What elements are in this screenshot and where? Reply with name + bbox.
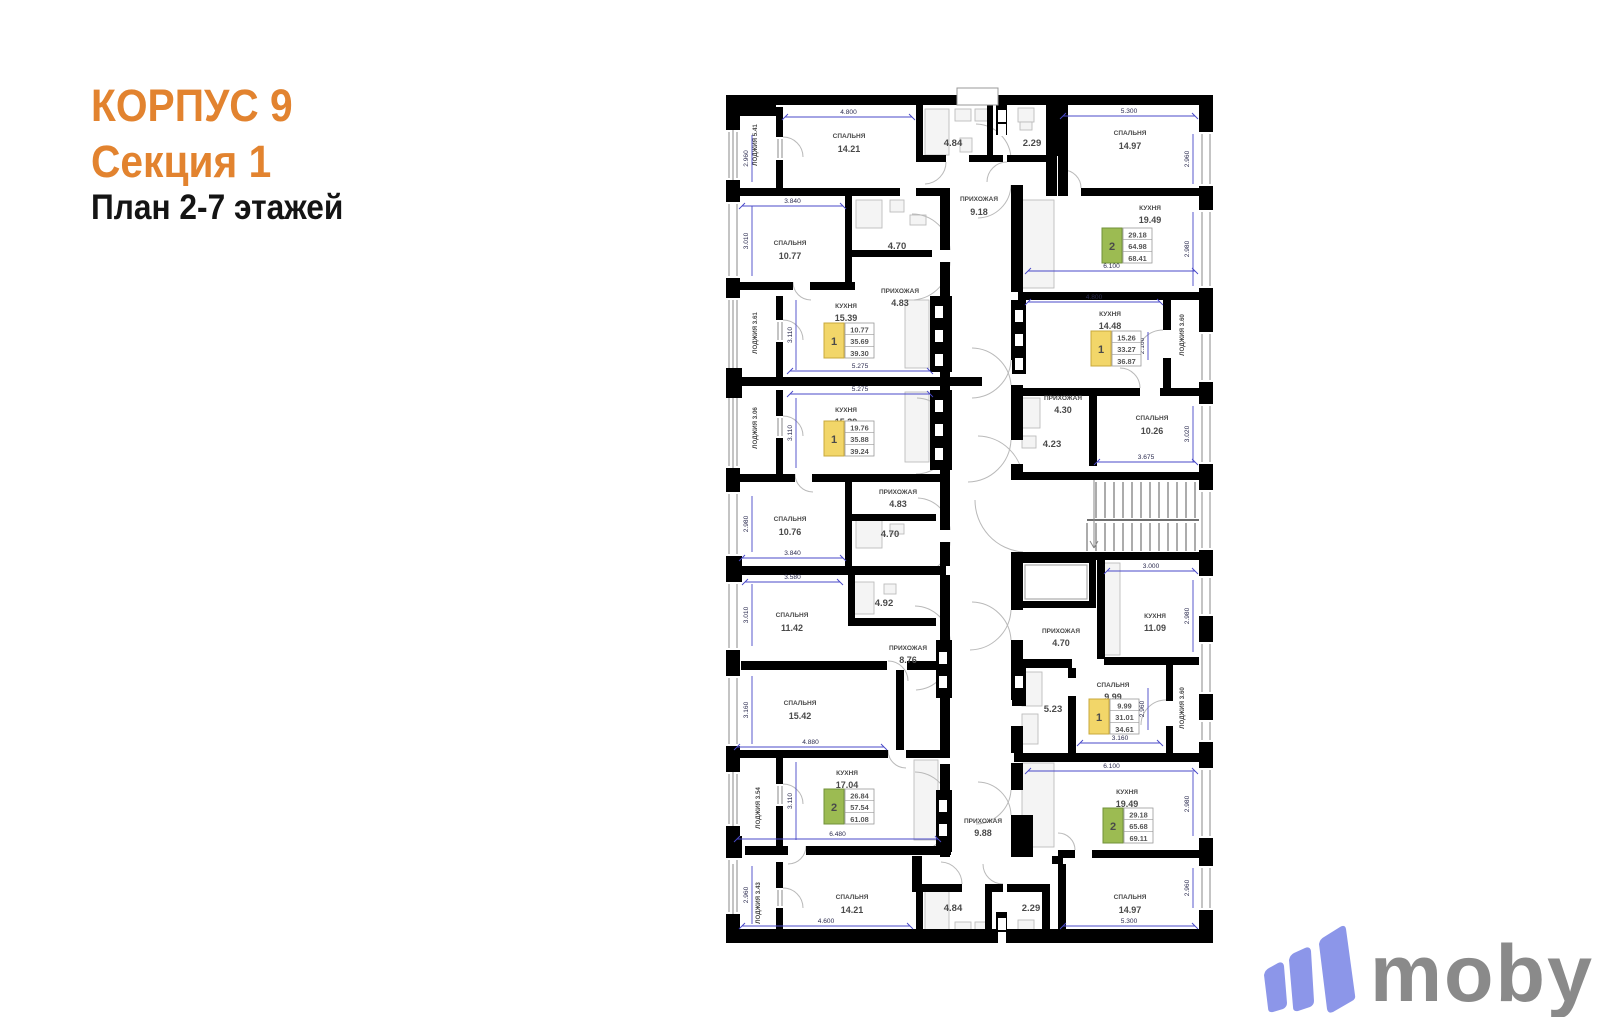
svg-text:5.300: 5.300 [1121,918,1138,925]
svg-text:19.76: 19.76 [850,424,869,433]
svg-text:14.48: 14.48 [1099,321,1122,331]
svg-text:СПАЛЬНЯ: СПАЛЬНЯ [1097,682,1130,689]
svg-text:ЛОДЖИЯ 3.60: ЛОДЖИЯ 3.60 [1179,687,1186,729]
svg-text:2.29: 2.29 [1023,138,1042,149]
svg-text:КУХНЯ: КУХНЯ [1144,613,1166,620]
svg-text:3.160: 3.160 [743,701,750,718]
svg-text:ЛОДЖИЯ 3.06: ЛОДЖИЯ 3.06 [752,407,759,449]
svg-text:1: 1 [1098,344,1104,356]
svg-text:39.30: 39.30 [850,349,869,358]
svg-text:14.21: 14.21 [841,905,864,915]
svg-text:2.980: 2.980 [1184,607,1191,624]
svg-text:ЛОДЖИЯ 5.41: ЛОДЖИЯ 5.41 [752,124,759,166]
svg-text:moby: moby [1370,929,1594,1017]
svg-text:2.960: 2.960 [1184,150,1191,167]
svg-text:4.83: 4.83 [891,298,909,308]
svg-text:14.97: 14.97 [1119,141,1142,151]
svg-text:4.84: 4.84 [944,138,963,149]
svg-text:35.88: 35.88 [850,435,869,444]
svg-text:3.110: 3.110 [787,793,794,809]
svg-text:65.68: 65.68 [1129,822,1148,831]
svg-text:3.010: 3.010 [743,606,750,623]
svg-text:2.960: 2.960 [1184,879,1191,896]
svg-text:СПАЛЬНЯ: СПАЛЬНЯ [1136,415,1169,422]
svg-text:36.87: 36.87 [1117,357,1136,366]
svg-text:3.160: 3.160 [1112,735,1129,742]
svg-text:3.580: 3.580 [784,574,801,581]
svg-text:3.840: 3.840 [784,198,801,205]
svg-text:5.275: 5.275 [852,386,869,393]
svg-text:10.77: 10.77 [779,251,802,261]
svg-text:4.84: 4.84 [944,903,963,914]
svg-text:6.480: 6.480 [829,831,846,838]
svg-text:ПРИХОЖАЯ: ПРИХОЖАЯ [889,645,927,652]
svg-text:ПРИХОЖАЯ: ПРИХОЖАЯ [960,196,998,203]
svg-text:3.010: 3.010 [743,232,750,249]
svg-text:ПРИХОЖАЯ: ПРИХОЖАЯ [1044,395,1082,402]
svg-text:9.99: 9.99 [1117,702,1131,711]
svg-text:СПАЛЬНЯ: СПАЛЬНЯ [774,240,807,247]
svg-text:33.27: 33.27 [1117,345,1136,354]
svg-text:2: 2 [1110,821,1116,833]
svg-text:ПРИХОЖАЯ: ПРИХОЖАЯ [881,288,919,295]
svg-text:КУХНЯ: КУХНЯ [1116,789,1138,796]
svg-text:19.49: 19.49 [1139,215,1162,225]
svg-text:2.960: 2.960 [1139,700,1146,717]
svg-text:3.840: 3.840 [784,550,801,557]
svg-text:68.41: 68.41 [1128,254,1147,263]
svg-text:4.70: 4.70 [881,529,900,540]
svg-text:СПАЛЬНЯ: СПАЛЬНЯ [833,133,866,140]
svg-text:КУХНЯ: КУХНЯ [835,303,857,310]
svg-text:11.09: 11.09 [1144,623,1166,633]
svg-text:29.18: 29.18 [1128,231,1147,240]
svg-text:4.23: 4.23 [1043,439,1062,450]
svg-text:4.92: 4.92 [875,598,894,609]
svg-text:2.980: 2.980 [1184,240,1191,257]
svg-text:8.76: 8.76 [899,655,917,665]
svg-text:ЛОДЖИЯ 3.60: ЛОДЖИЯ 3.60 [1179,314,1186,356]
svg-text:1: 1 [831,336,837,348]
svg-text:5.275: 5.275 [852,363,869,370]
svg-text:СПАЛЬНЯ: СПАЛЬНЯ [1114,894,1147,901]
svg-text:10.26: 10.26 [1141,426,1164,436]
svg-text:15.26: 15.26 [1117,334,1136,343]
svg-text:КУХНЯ: КУХНЯ [835,407,857,414]
svg-text:5.23: 5.23 [1044,704,1063,715]
svg-text:ПРИХОЖАЯ: ПРИХОЖАЯ [1042,628,1080,635]
svg-text:35.69: 35.69 [850,337,869,346]
svg-text:5.300: 5.300 [1121,108,1138,115]
svg-text:31.01: 31.01 [1115,713,1134,722]
svg-text:СПАЛЬНЯ: СПАЛЬНЯ [774,516,807,523]
svg-text:57.54: 57.54 [850,803,869,812]
svg-text:ЛОДЖИЯ 3.54: ЛОДЖИЯ 3.54 [755,787,762,829]
svg-text:КУХНЯ: КУХНЯ [1139,205,1161,212]
svg-text:4.800: 4.800 [1086,294,1103,301]
svg-text:6.100: 6.100 [1103,763,1120,770]
svg-text:ПРИХОЖАЯ: ПРИХОЖАЯ [879,489,917,496]
svg-text:СПАЛЬНЯ: СПАЛЬНЯ [836,894,869,901]
svg-text:4.800: 4.800 [840,109,857,116]
svg-text:4.880: 4.880 [802,739,819,746]
svg-text:39.24: 39.24 [850,447,869,456]
svg-text:10.76: 10.76 [779,527,802,537]
svg-text:СПАЛЬНЯ: СПАЛЬНЯ [1114,130,1147,137]
svg-text:10.77: 10.77 [850,326,869,335]
svg-text:СПАЛЬНЯ: СПАЛЬНЯ [776,612,809,619]
svg-text:2: 2 [1109,241,1115,253]
svg-text:3.020: 3.020 [1184,425,1191,442]
svg-text:15.39: 15.39 [835,313,858,323]
svg-text:14.97: 14.97 [1119,905,1142,915]
svg-text:2.980: 2.980 [1184,795,1191,812]
svg-text:6.100: 6.100 [1103,263,1120,270]
svg-text:15.42: 15.42 [789,711,812,721]
svg-text:3.110: 3.110 [787,425,794,441]
svg-text:1: 1 [1096,712,1102,724]
svg-text:14.21: 14.21 [838,144,861,154]
svg-text:61.08: 61.08 [850,815,869,824]
svg-text:3.675: 3.675 [1138,454,1155,461]
svg-text:ПРИХОЖАЯ: ПРИХОЖАЯ [964,818,1002,825]
svg-text:26.84: 26.84 [850,792,869,801]
svg-text:9.88: 9.88 [974,828,992,838]
svg-text:1: 1 [831,434,837,446]
svg-text:64.98: 64.98 [1128,242,1147,251]
svg-text:4.70: 4.70 [1052,638,1070,648]
svg-text:2.960: 2.960 [743,150,750,167]
svg-text:2.980: 2.980 [743,515,750,532]
svg-text:29.18: 29.18 [1129,811,1148,820]
svg-text:ЛОДЖИЯ 3.43: ЛОДЖИЯ 3.43 [755,882,762,924]
svg-text:69.11: 69.11 [1129,834,1147,843]
svg-text:4.600: 4.600 [818,918,835,925]
svg-text:9.18: 9.18 [970,207,988,217]
svg-text:4.30: 4.30 [1054,405,1072,415]
svg-text:КУХНЯ: КУХНЯ [836,770,858,777]
svg-text:3.110: 3.110 [787,327,794,343]
svg-text:4.83: 4.83 [889,499,907,509]
svg-text:3.000: 3.000 [1143,563,1160,570]
svg-text:КУХНЯ: КУХНЯ [1099,311,1121,318]
svg-text:2.29: 2.29 [1022,903,1041,914]
svg-text:СПАЛЬНЯ: СПАЛЬНЯ [784,700,817,707]
svg-text:2.960: 2.960 [743,886,750,903]
svg-text:ЛОДЖИЯ 3.61: ЛОДЖИЯ 3.61 [752,312,759,354]
svg-text:11.42: 11.42 [781,623,803,633]
svg-text:4.70: 4.70 [888,241,907,252]
svg-text:34.61: 34.61 [1115,725,1134,734]
svg-text:2: 2 [831,802,837,814]
